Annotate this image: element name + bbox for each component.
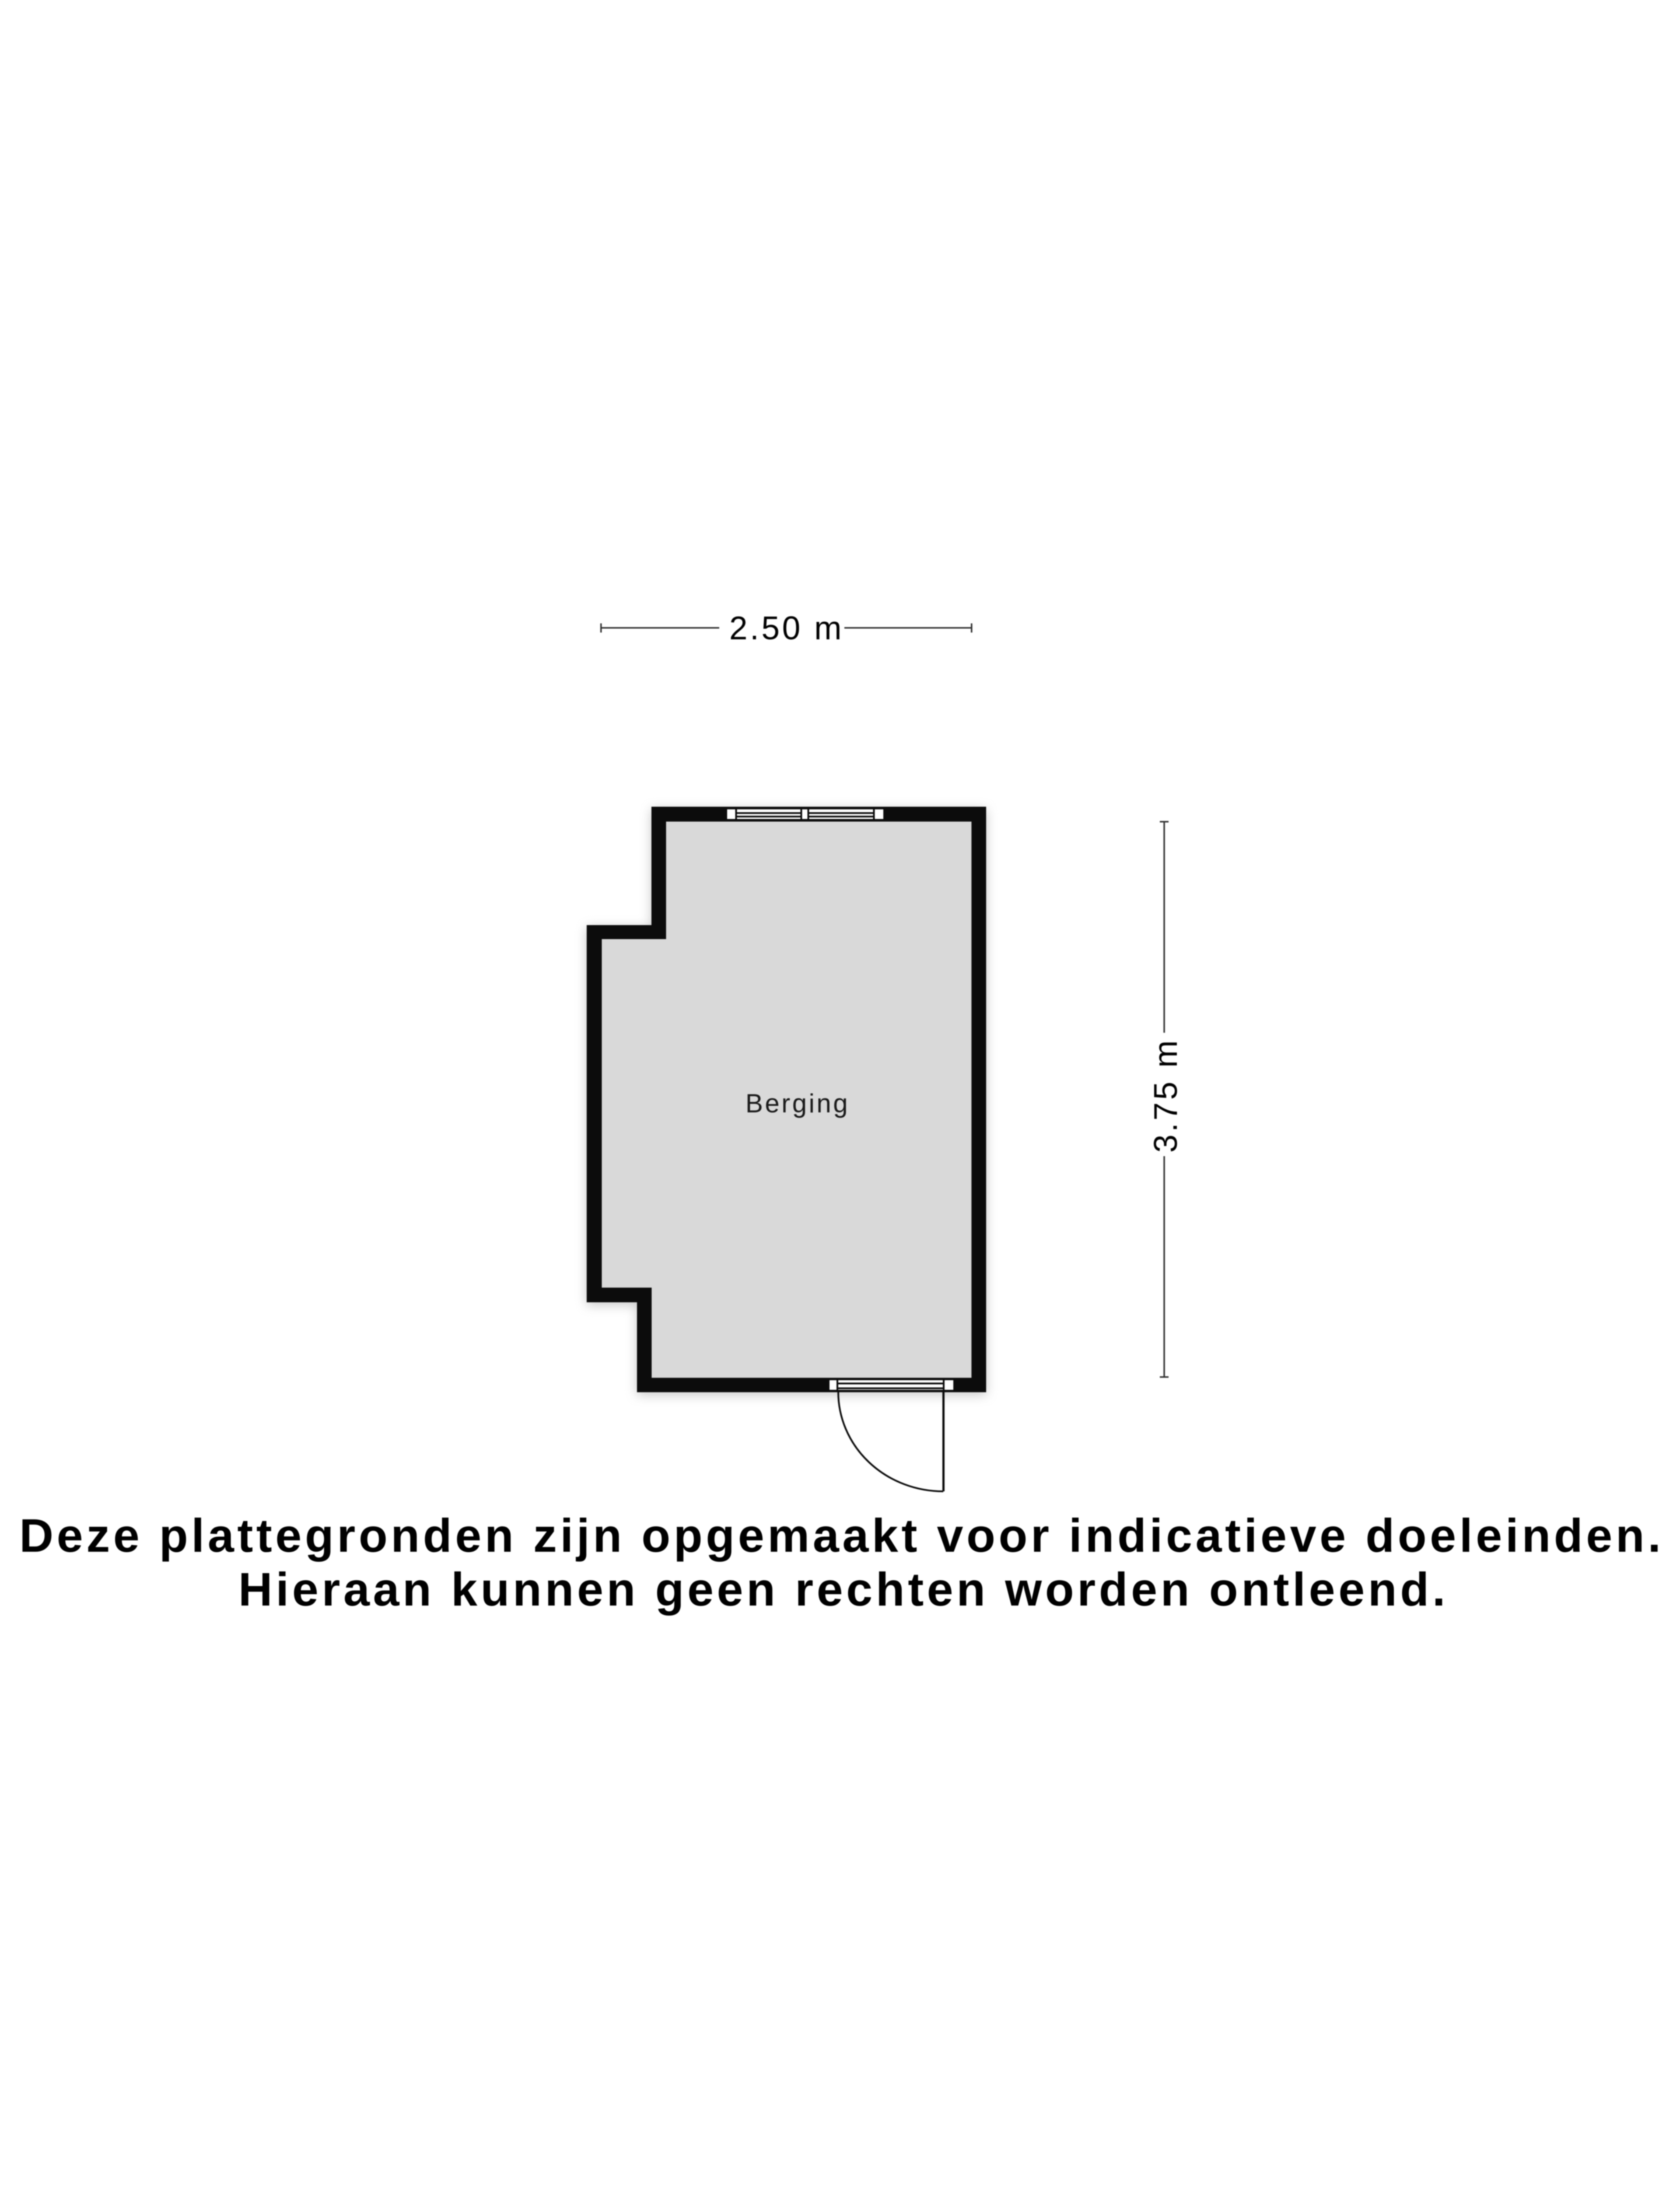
svg-text:3.75 m: 3.75 m [1147,1038,1184,1153]
svg-text:Deze plattegronden zijn opgema: Deze plattegronden zijn opgemaakt voor i… [19,1509,1664,1562]
svg-text:Berging: Berging [745,1089,850,1118]
svg-text:Hieraan kunnen geen rechten wo: Hieraan kunnen geen rechten worden ontle… [238,1563,1449,1616]
svg-text:2.50 m: 2.50 m [729,610,844,646]
